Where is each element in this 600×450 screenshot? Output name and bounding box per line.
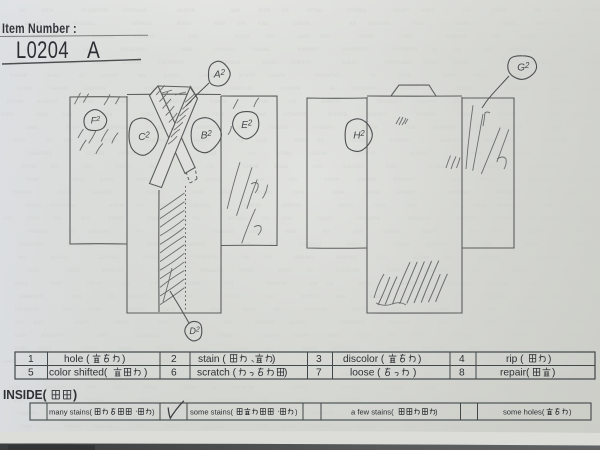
svg-text:wa: wa xyxy=(53,215,62,222)
svg-text:uuwno: uuwno xyxy=(292,332,311,339)
svg-text:nua: nua xyxy=(548,150,559,157)
svg-text:): ) xyxy=(284,368,287,379)
svg-text:mouma: mouma xyxy=(589,163,600,170)
svg-text:aoneom: aoneom xyxy=(41,332,63,339)
svg-text:mown: mown xyxy=(358,33,375,40)
svg-text:eouune: eouune xyxy=(343,163,364,170)
svg-text:nu: nu xyxy=(137,202,144,209)
svg-text:repair(: repair( xyxy=(500,368,530,379)
svg-text:uowe: uowe xyxy=(186,280,201,287)
svg-text:nnuw: nnuw xyxy=(324,176,339,183)
svg-text:monea: monea xyxy=(347,7,366,14)
svg-text:awm: awm xyxy=(282,423,295,430)
svg-text:): ) xyxy=(272,354,275,365)
svg-text:wou: wou xyxy=(213,20,226,27)
svg-text:annu: annu xyxy=(87,306,101,313)
svg-text:aewea: aewea xyxy=(401,280,420,287)
svg-text:aenama: aenama xyxy=(232,384,255,391)
svg-text:oonnwa: oonnwa xyxy=(510,46,532,53)
svg-text:maw: maw xyxy=(581,423,595,430)
svg-text:new: new xyxy=(482,137,494,144)
svg-text:umowem: umowem xyxy=(352,85,377,92)
svg-text:A: A xyxy=(87,36,100,64)
svg-text:mee: mee xyxy=(374,202,387,209)
svg-text:meau: meau xyxy=(57,189,73,196)
svg-text:noa: noa xyxy=(282,215,293,222)
svg-text:anaw: anaw xyxy=(183,384,198,391)
svg-text:mnn: mnn xyxy=(292,189,305,196)
svg-text:ma: ma xyxy=(354,228,363,235)
svg-text:mue: mue xyxy=(26,176,39,183)
svg-text:mwumu: mwumu xyxy=(214,46,236,53)
svg-text:emeoem: emeoem xyxy=(283,111,307,118)
svg-text:mu: mu xyxy=(526,215,535,222)
svg-text:ameu: ameu xyxy=(480,176,496,183)
svg-text:eom: eom xyxy=(542,202,554,209)
svg-text:): ) xyxy=(413,368,416,379)
svg-text:uan: uan xyxy=(62,111,73,118)
svg-text:eaenmu: eaenmu xyxy=(184,241,207,248)
svg-text:ma: ma xyxy=(211,306,220,313)
svg-text:eemuua: eemuua xyxy=(230,85,253,92)
svg-text:ouunw: ouunw xyxy=(525,228,544,235)
svg-text:aenu: aenu xyxy=(328,332,342,339)
svg-text:wa: wa xyxy=(321,228,330,235)
svg-text:nuemnn: nuemnn xyxy=(506,345,529,352)
svg-text:waoaw: waoaw xyxy=(92,423,113,430)
svg-text:2: 2 xyxy=(171,354,177,365)
svg-text:eoonme: eoonme xyxy=(434,124,457,131)
svg-text:anuen: anuen xyxy=(581,176,599,183)
svg-text:eowom: eowom xyxy=(255,319,275,326)
svg-text:uomo: uomo xyxy=(352,306,368,313)
svg-text:nomw: nomw xyxy=(7,98,24,105)
svg-text:on: on xyxy=(585,124,592,131)
svg-text:wmunon: wmunon xyxy=(527,176,552,183)
svg-text:enm: enm xyxy=(258,7,270,14)
svg-text:oo: oo xyxy=(504,241,511,248)
svg-text:uwoamo: uwoamo xyxy=(489,423,513,430)
svg-text:hole (: hole ( xyxy=(64,354,90,365)
svg-text:ea: ea xyxy=(589,98,596,105)
svg-text:aw: aw xyxy=(138,72,146,79)
svg-text:naeeo: naeeo xyxy=(1,358,19,365)
svg-text:awawm: awawm xyxy=(37,98,58,105)
svg-text:stain (: stain ( xyxy=(198,354,226,365)
svg-text:omeaen: omeaen xyxy=(119,150,142,157)
svg-text:aauou: aauou xyxy=(289,319,307,326)
svg-text:naea: naea xyxy=(525,241,539,248)
svg-text:am: am xyxy=(81,215,90,222)
svg-text:mmmawo: mmmawo xyxy=(385,59,412,66)
svg-text:nm: nm xyxy=(266,33,275,40)
svg-text:eun: eun xyxy=(223,280,234,287)
svg-text:ewo: ewo xyxy=(285,228,297,235)
svg-text:oeaou: oeaou xyxy=(455,85,473,92)
svg-text:awma: awma xyxy=(557,371,574,378)
svg-text:manmmo: manmmo xyxy=(343,46,369,53)
svg-text:un: un xyxy=(289,98,296,105)
svg-text:waunu: waunu xyxy=(127,306,147,313)
svg-text:moaean: moaean xyxy=(211,228,234,235)
svg-text:no: no xyxy=(225,319,232,326)
svg-text:uwewen: uwewen xyxy=(452,332,475,339)
svg-text:wm: wm xyxy=(2,215,13,222)
svg-text:oone: oone xyxy=(366,189,380,196)
svg-text:wau: wau xyxy=(405,124,418,131)
svg-text:onm: onm xyxy=(28,215,40,222)
svg-text:ooeam: ooeam xyxy=(294,254,313,261)
svg-text:nnmm: nnmm xyxy=(108,241,125,248)
svg-text:mm: mm xyxy=(98,332,108,339)
svg-text:nw: nw xyxy=(309,280,317,287)
svg-text:nauee: nauee xyxy=(310,150,328,157)
svg-text:wawnum: wawnum xyxy=(18,293,43,300)
svg-text:owa: owa xyxy=(401,33,413,40)
svg-text:aaonme: aaonme xyxy=(84,85,107,92)
svg-text:uwn: uwn xyxy=(26,124,38,131)
svg-text:euoo: euoo xyxy=(14,280,28,287)
svg-text:uuua: uuua xyxy=(18,85,32,92)
svg-text:un: un xyxy=(249,150,256,157)
svg-text:uwaeuu: uwaeuu xyxy=(506,85,528,92)
svg-text:woowwn: woowwn xyxy=(542,384,567,391)
svg-text:eea: eea xyxy=(336,293,347,300)
svg-text:oaaoe: oaaoe xyxy=(210,98,228,105)
svg-text:uoanmw: uoanmw xyxy=(20,241,44,248)
svg-text:naweou: naweou xyxy=(137,332,159,339)
svg-text:mnaua: mnaua xyxy=(427,163,446,170)
svg-text:uoaawu: uoaawu xyxy=(189,202,211,209)
svg-text:ne: ne xyxy=(242,254,249,261)
svg-text:oumenw: oumenw xyxy=(485,280,509,287)
svg-text:eooa: eooa xyxy=(274,163,288,170)
svg-text:wuu: wuu xyxy=(553,7,566,14)
svg-text:noww: noww xyxy=(291,384,307,391)
svg-text:wowne: wowne xyxy=(510,267,531,274)
svg-text:mmmnwe: mmmnwe xyxy=(444,280,471,287)
svg-text:aawoo: aawoo xyxy=(550,72,569,79)
svg-text:ea: ea xyxy=(528,293,535,300)
svg-text:nweeoa: nweeoa xyxy=(388,319,410,326)
svg-text:naw: naw xyxy=(486,319,498,326)
svg-text:wauo: wauo xyxy=(341,59,357,66)
svg-text:oewo: oewo xyxy=(455,20,470,27)
svg-text:umw: umw xyxy=(584,59,598,66)
svg-text:mu: mu xyxy=(567,33,576,40)
svg-text:onau: onau xyxy=(473,72,487,79)
svg-text:wwne: wwne xyxy=(238,267,255,274)
svg-text:): ) xyxy=(73,388,77,402)
svg-text:neone: neone xyxy=(242,163,260,170)
svg-text:uo: uo xyxy=(199,345,206,352)
svg-text:eu: eu xyxy=(79,72,86,79)
svg-text:a few stains(: a few stains( xyxy=(351,408,394,417)
svg-text:mwmwe: mwmwe xyxy=(304,306,327,313)
svg-text:wwm: wwm xyxy=(277,267,292,274)
svg-text:one: one xyxy=(135,423,146,430)
svg-text:wano: wano xyxy=(575,319,591,326)
svg-text:neoaom: neoaom xyxy=(226,345,248,352)
svg-text:muonw: muonw xyxy=(267,280,287,287)
svg-text:ne: ne xyxy=(282,7,289,14)
svg-text:omem: omem xyxy=(81,345,98,352)
svg-text:ou: ou xyxy=(47,358,54,365)
svg-text:uma: uma xyxy=(412,20,425,27)
svg-text:ww: ww xyxy=(63,137,73,144)
svg-text:wnnnuu: wnnnuu xyxy=(477,254,500,261)
svg-text:momm: momm xyxy=(497,384,516,391)
svg-text:nuaae: nuaae xyxy=(252,46,270,53)
svg-text:aweuw: aweuw xyxy=(321,98,341,105)
svg-text:uommmw: uommmw xyxy=(333,345,360,352)
svg-text:no: no xyxy=(425,371,432,378)
svg-text:mmaoem: mmaoem xyxy=(120,46,146,53)
svg-text:4: 4 xyxy=(459,354,465,365)
svg-text:uoea: uoea xyxy=(38,345,52,352)
svg-text:nao: nao xyxy=(562,267,573,274)
svg-text:muem: muem xyxy=(393,241,410,248)
svg-text:uwaen: uwaen xyxy=(453,423,472,430)
svg-text:owm: owm xyxy=(297,33,310,40)
svg-text:eno: eno xyxy=(506,137,517,144)
svg-text:wwe: wwe xyxy=(386,267,400,274)
svg-text:ooeoom: ooeoom xyxy=(126,293,148,300)
svg-text:un: un xyxy=(211,384,218,391)
svg-text:maue: maue xyxy=(87,280,103,287)
svg-text:mwwa: mwwa xyxy=(64,423,82,430)
svg-text:waneee: waneee xyxy=(581,7,600,14)
svg-text:mawu: mawu xyxy=(25,202,42,209)
svg-text:some holes(: some holes( xyxy=(503,408,545,417)
svg-text:ounma: ounma xyxy=(242,202,261,209)
svg-text:mne: mne xyxy=(13,137,26,144)
svg-text:wwuoa: wwuoa xyxy=(145,241,166,248)
svg-text:enmmn: enmmn xyxy=(291,59,312,66)
svg-text:wu: wu xyxy=(529,280,538,287)
svg-text:amuau: amuau xyxy=(228,215,247,222)
svg-text:ow: ow xyxy=(462,319,470,326)
svg-text:eouwoe: eouwoe xyxy=(133,33,155,40)
svg-text:wm: wm xyxy=(319,33,330,40)
svg-text:awewm: awewm xyxy=(369,293,390,300)
svg-text:aunnae: aunnae xyxy=(579,254,600,261)
svg-text:ewe: ewe xyxy=(51,280,63,287)
svg-text:noan: noan xyxy=(66,124,80,131)
svg-text:nauuwn: nauuwn xyxy=(312,410,334,417)
svg-text:uwee: uwee xyxy=(218,332,233,339)
svg-text:wuu: wuu xyxy=(180,46,193,53)
svg-text:nu: nu xyxy=(493,228,500,235)
svg-text:naaa: naaa xyxy=(65,267,79,274)
svg-text:nnnwm: nnnwm xyxy=(313,124,333,131)
svg-text:L0204: L0204 xyxy=(16,37,69,64)
svg-text:woweew: woweew xyxy=(496,202,521,209)
svg-text:no: no xyxy=(262,215,269,222)
svg-text:uouon: uouon xyxy=(293,20,311,27)
svg-text:new: new xyxy=(481,241,493,248)
svg-text:naenu: naenu xyxy=(268,72,286,79)
svg-text:oneae: oneae xyxy=(559,345,577,352)
svg-text:unumm: unumm xyxy=(562,332,583,339)
svg-text:mwn: mwn xyxy=(572,241,586,248)
svg-text:awn: awn xyxy=(256,137,268,144)
svg-text:uan: uan xyxy=(82,163,93,170)
svg-text:eu: eu xyxy=(330,85,337,92)
svg-text:Item Number :: Item Number : xyxy=(2,21,77,37)
svg-text:newa: newa xyxy=(114,319,129,326)
svg-text:omowaa: omowaa xyxy=(123,7,147,14)
svg-text:7: 7 xyxy=(316,368,322,379)
svg-text:meaanm: meaanm xyxy=(534,254,558,261)
svg-text:eoeou: eoeou xyxy=(50,254,68,261)
svg-text:en: en xyxy=(135,228,142,235)
svg-text:aun: aun xyxy=(230,7,241,14)
svg-text:wnnowa: wnnowa xyxy=(217,59,241,66)
svg-text:eoom: eoom xyxy=(422,228,437,235)
svg-text:en: en xyxy=(452,202,459,209)
svg-text:won: won xyxy=(570,202,583,209)
svg-text:ouwoo: ouwoo xyxy=(388,345,407,352)
svg-text:nnuem: nnuem xyxy=(382,306,401,313)
svg-text:aooon: aooon xyxy=(400,85,418,92)
svg-text:muooam: muooam xyxy=(377,98,401,105)
svg-text:memwee: memwee xyxy=(575,410,600,417)
svg-text:aao: aao xyxy=(407,202,418,209)
svg-text:auemw: auemw xyxy=(510,150,530,157)
svg-text:eau: eau xyxy=(258,20,269,27)
svg-text:rip (: rip ( xyxy=(506,354,524,365)
svg-text:uon: uon xyxy=(299,358,310,365)
svg-text:anu: anu xyxy=(188,33,199,40)
svg-text:neeu: neeu xyxy=(403,423,417,430)
svg-text:nemaum: nemaum xyxy=(15,306,39,313)
svg-text:aouo: aouo xyxy=(177,20,191,27)
svg-text:aeo: aeo xyxy=(425,384,436,391)
svg-text:oaua: oaua xyxy=(71,176,85,183)
svg-text:nunanw: nunanw xyxy=(428,306,450,313)
svg-text:oannn: oannn xyxy=(163,423,181,430)
svg-text:mn: mn xyxy=(413,332,422,339)
svg-text:ueuu: ueuu xyxy=(116,163,130,170)
svg-text:aee: aee xyxy=(552,124,563,131)
svg-text:uon: uon xyxy=(471,267,482,274)
svg-text:un: un xyxy=(266,345,273,352)
svg-text:ao: ao xyxy=(582,150,589,157)
svg-text:nwuoae: nwuoae xyxy=(423,345,445,352)
svg-text:awnouo: awnouo xyxy=(336,254,358,261)
svg-text:wmomew: wmomew xyxy=(391,46,419,53)
svg-text:un: un xyxy=(463,7,470,14)
svg-text:um: um xyxy=(242,241,251,248)
svg-text:eow: eow xyxy=(474,202,486,209)
svg-text:ona: ona xyxy=(566,306,577,313)
svg-text:euoawu: euoawu xyxy=(393,176,415,183)
svg-text:mnomnu: mnomnu xyxy=(194,254,219,261)
svg-text:we: we xyxy=(272,306,281,313)
svg-text:en: en xyxy=(269,241,276,248)
svg-text:wemne: wemne xyxy=(88,228,110,235)
svg-text:nuw: nuw xyxy=(564,46,576,53)
svg-text:onamun: onamun xyxy=(586,215,600,222)
svg-text:uou: uou xyxy=(313,163,324,170)
svg-text:uwenm: uwenm xyxy=(282,202,302,209)
svg-text:num: num xyxy=(399,72,411,79)
svg-text:oaaem: oaaem xyxy=(18,410,37,417)
svg-text:uunwn: uunwn xyxy=(383,228,402,235)
svg-text:eaeo: eaeo xyxy=(100,176,114,183)
svg-text:oe: oe xyxy=(306,267,313,274)
svg-text:): ) xyxy=(418,354,421,365)
svg-text:an: an xyxy=(19,7,26,14)
svg-text:oune: oune xyxy=(263,59,277,66)
svg-text:mnu: mnu xyxy=(115,384,128,391)
svg-text:ooaun: ooaun xyxy=(573,111,591,118)
svg-text:oowu: oowu xyxy=(423,59,438,66)
svg-text:owam: owam xyxy=(393,7,410,14)
svg-text:onew: onew xyxy=(302,345,317,352)
svg-text:oa: oa xyxy=(534,7,541,14)
svg-text:eaoo: eaoo xyxy=(503,20,517,27)
svg-text:uomuen: uomuen xyxy=(426,241,449,248)
svg-text:umeau: umeau xyxy=(204,423,223,430)
svg-text:ewom: ewom xyxy=(545,215,562,222)
svg-text:enaen: enaen xyxy=(397,189,415,196)
svg-text:nmo: nmo xyxy=(141,111,154,118)
svg-text:INSIDE(: INSIDE( xyxy=(3,388,47,402)
svg-text:uaaunm: uaaunm xyxy=(299,241,321,248)
svg-text:uoum: uoum xyxy=(234,33,249,40)
svg-text:discolor (: discolor ( xyxy=(343,354,385,365)
svg-text:5: 5 xyxy=(28,368,34,379)
svg-text:weo: weo xyxy=(469,228,482,235)
svg-text:oewuo: oewuo xyxy=(355,423,374,430)
svg-text:nmo: nmo xyxy=(27,267,40,274)
svg-text:eamno: eamno xyxy=(28,228,47,235)
svg-text:omou: omou xyxy=(21,163,37,170)
svg-text:mawne: mawne xyxy=(389,137,410,144)
svg-text:awuwa: awuwa xyxy=(416,111,436,118)
svg-text:oanm: oanm xyxy=(338,202,353,209)
svg-text:amnoua: amnoua xyxy=(101,267,124,274)
svg-text:color shifted(: color shifted( xyxy=(49,368,108,379)
svg-text:uuwwa: uuwwa xyxy=(281,85,301,92)
svg-text:eo: eo xyxy=(267,293,274,300)
svg-text:wnnw: wnnw xyxy=(490,7,507,14)
svg-text:some stains(: some stains( xyxy=(190,408,234,417)
svg-text:we: we xyxy=(17,254,26,261)
svg-text:wnwwa: wnwwa xyxy=(131,20,153,27)
svg-text:enm: enm xyxy=(421,7,433,14)
svg-text:oaunww: oaunww xyxy=(310,423,333,430)
svg-text:): ) xyxy=(144,368,147,379)
svg-text:uoon: uoon xyxy=(318,215,332,222)
svg-text:ea: ea xyxy=(326,280,333,287)
svg-text:ww: ww xyxy=(86,384,96,391)
svg-text:8: 8 xyxy=(459,368,465,379)
svg-text:wamu: wamu xyxy=(204,176,222,183)
svg-text:uueam: uueam xyxy=(519,33,538,40)
svg-text:ouw: ouw xyxy=(385,163,397,170)
svg-text:nowama: nowama xyxy=(52,202,76,209)
svg-text:eoema: eoema xyxy=(410,150,429,157)
svg-text:aumw: aumw xyxy=(109,202,126,209)
svg-text:uwe: uwe xyxy=(20,423,32,430)
svg-text:nnoa: nnoa xyxy=(143,384,157,391)
svg-text:6: 6 xyxy=(171,368,177,379)
svg-text:aaonea: aaonea xyxy=(98,254,119,261)
svg-text:uwn: uwn xyxy=(257,98,269,105)
